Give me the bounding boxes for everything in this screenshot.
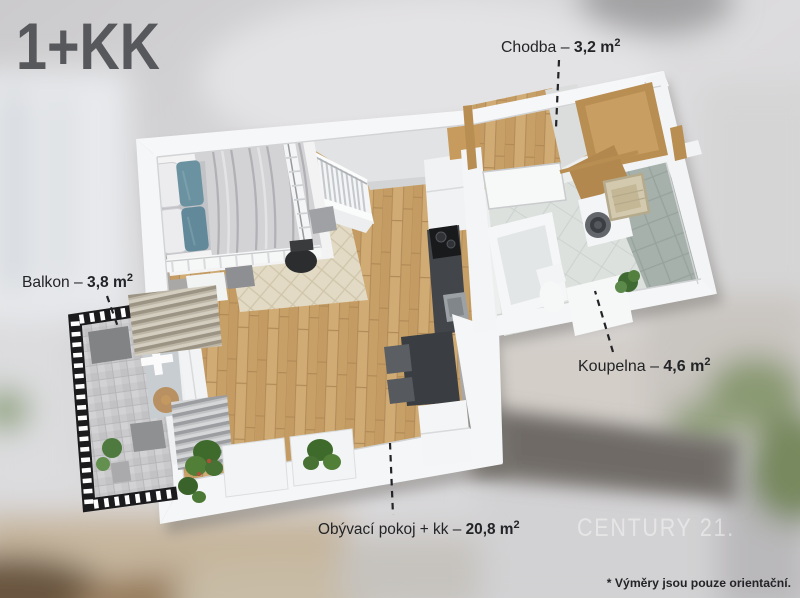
svg-text:Obývací pokoj + kk – 20,8 m2: Obývací pokoj + kk – 20,8 m2 — [318, 519, 520, 538]
svg-text:Koupelna – 4,6 m2: Koupelna – 4,6 m2 — [578, 356, 710, 375]
svg-text:CENTURY 21.: CENTURY 21. — [577, 514, 735, 542]
svg-text:1+KK: 1+KK — [16, 9, 160, 83]
svg-text:* Výměry jsou pouze orientační: * Výměry jsou pouze orientační. — [607, 576, 791, 590]
svg-text:Chodba – 3,2 m2: Chodba – 3,2 m2 — [501, 37, 620, 56]
svg-text:Balkon – 3,8 m2: Balkon – 3,8 m2 — [22, 272, 133, 291]
